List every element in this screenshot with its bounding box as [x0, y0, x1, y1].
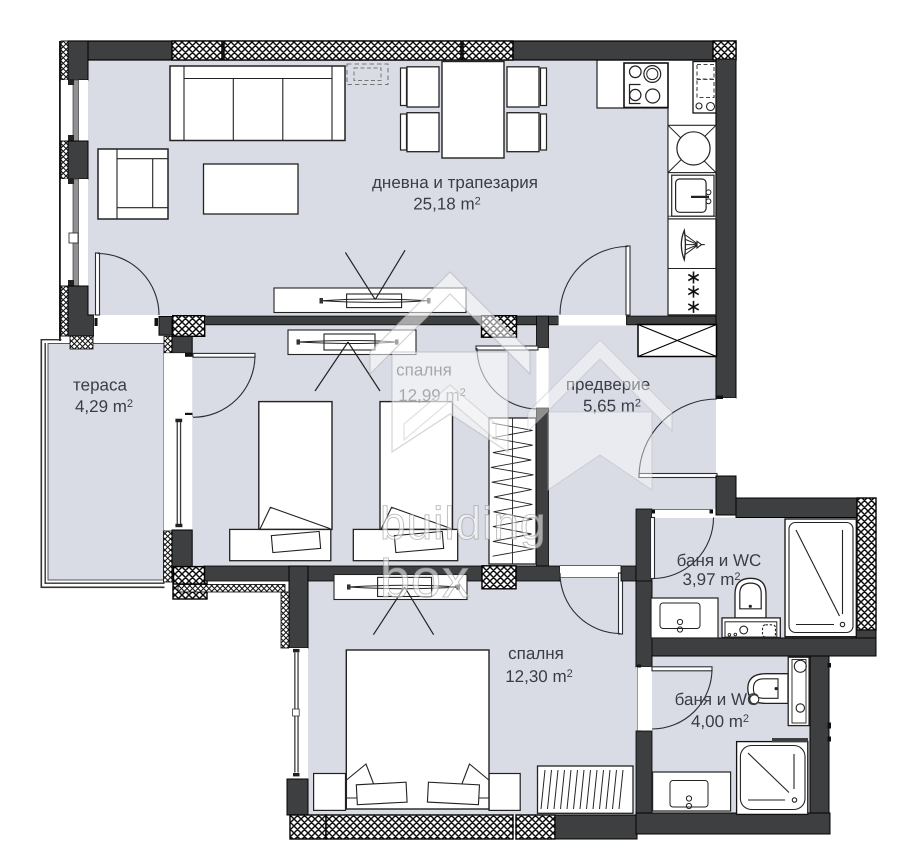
svg-text:box: box — [380, 549, 470, 609]
svg-text:4,29 m2: 4,29 m2 — [75, 397, 133, 416]
svg-text:25,18 m2: 25,18 m2 — [413, 195, 481, 214]
svg-text:12,30 m2: 12,30 m2 — [505, 667, 573, 686]
svg-text:3,97 m2: 3,97 m2 — [682, 570, 740, 589]
svg-text:building: building — [380, 497, 547, 549]
svg-text:баня и WC: баня и WC — [675, 690, 760, 709]
svg-text:баня и WC: баня и WC — [677, 551, 762, 570]
svg-text:4,00 m2: 4,00 m2 — [691, 712, 749, 731]
svg-text:тераса: тераса — [73, 376, 127, 395]
svg-text:дневна и трапезария: дневна и трапезария — [372, 173, 538, 192]
svg-text:спалня: спалня — [508, 644, 564, 663]
